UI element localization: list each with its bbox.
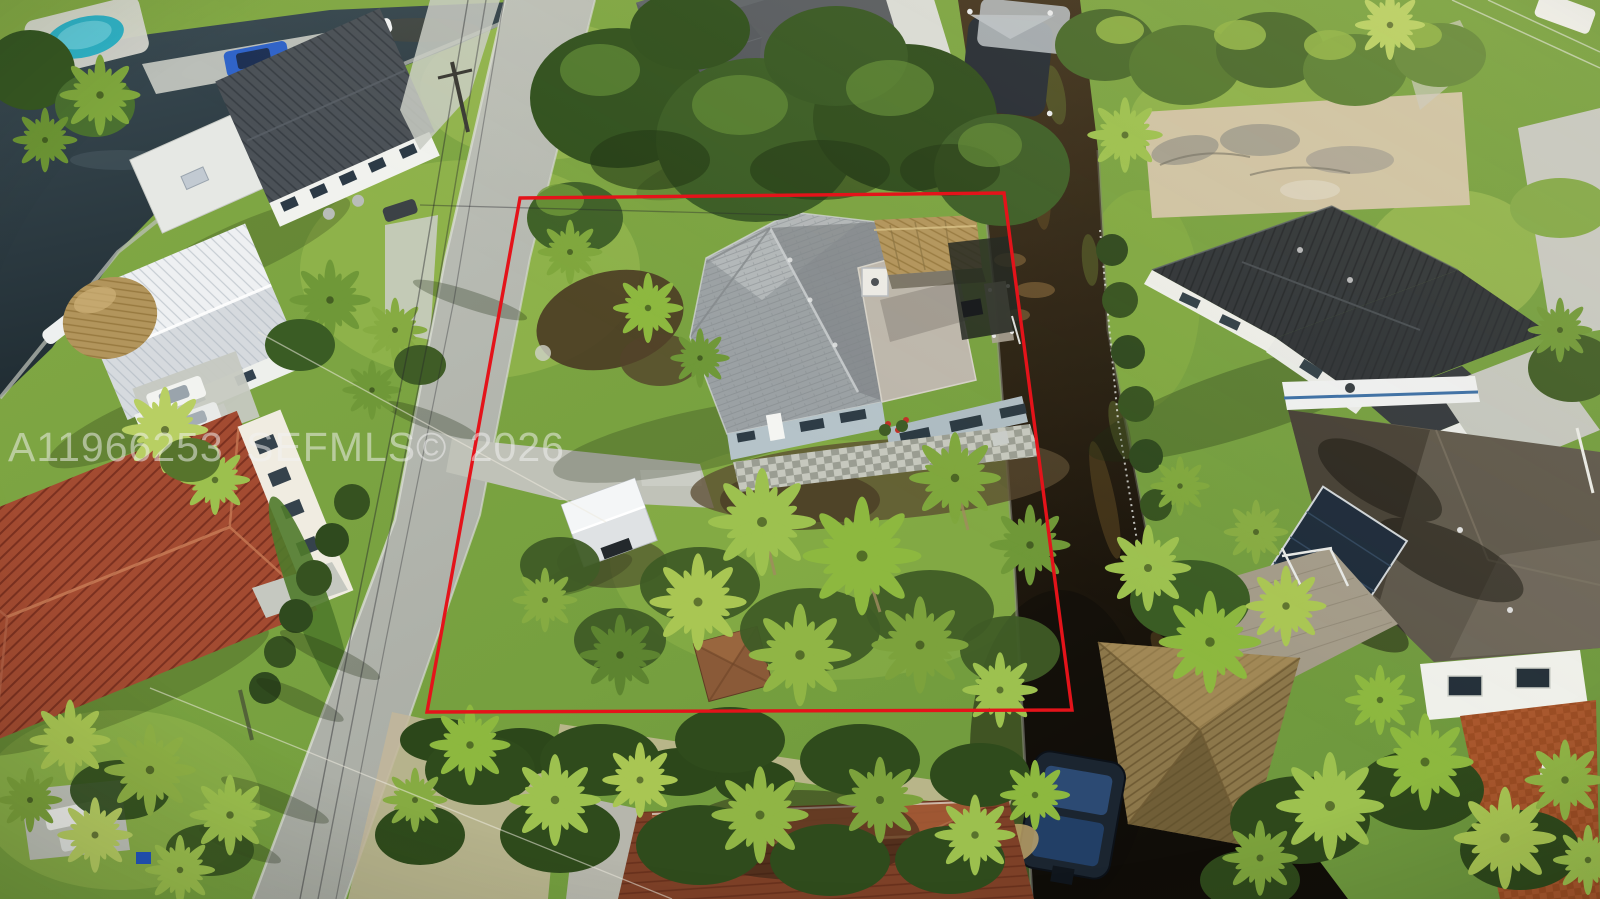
aerial-photo: A11966253 SEFMLS© 2026 — [0, 0, 1600, 899]
mls-watermark: A11966253 SEFMLS© 2026 — [8, 424, 565, 470]
aerial-photo-canvas: A11966253 SEFMLS© 2026 — [0, 0, 1600, 899]
